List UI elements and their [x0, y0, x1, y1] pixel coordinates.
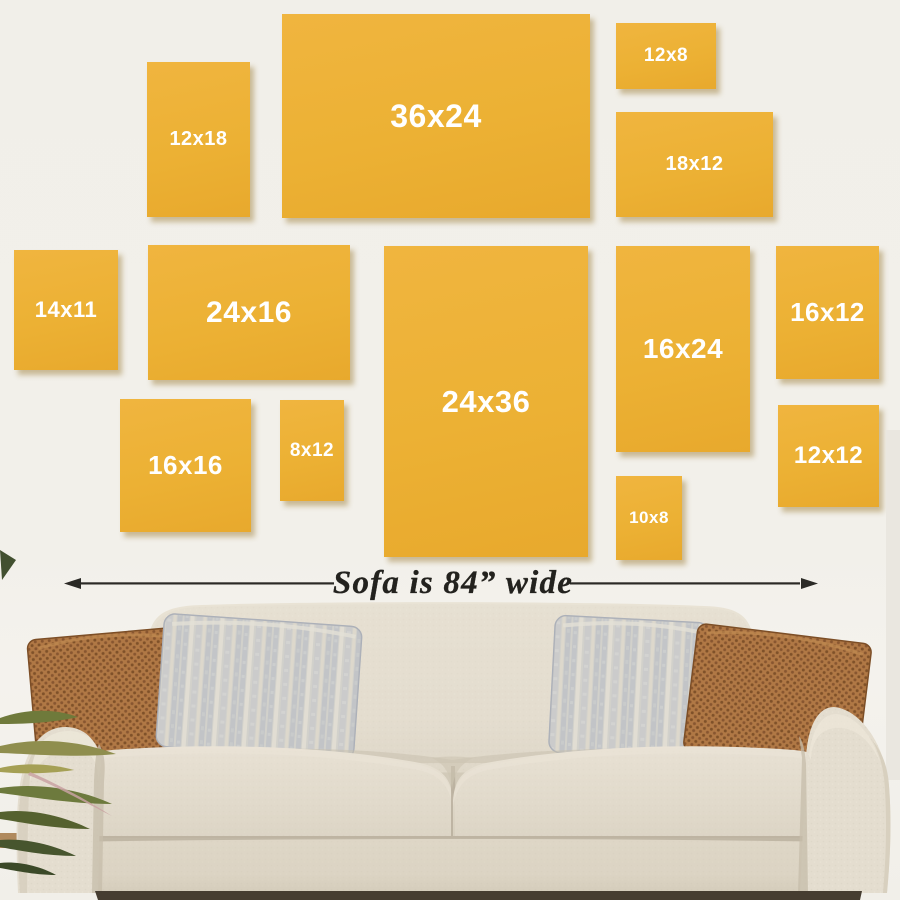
- svg-text:Sofa is 84” wide: Sofa is 84” wide: [333, 565, 573, 601]
